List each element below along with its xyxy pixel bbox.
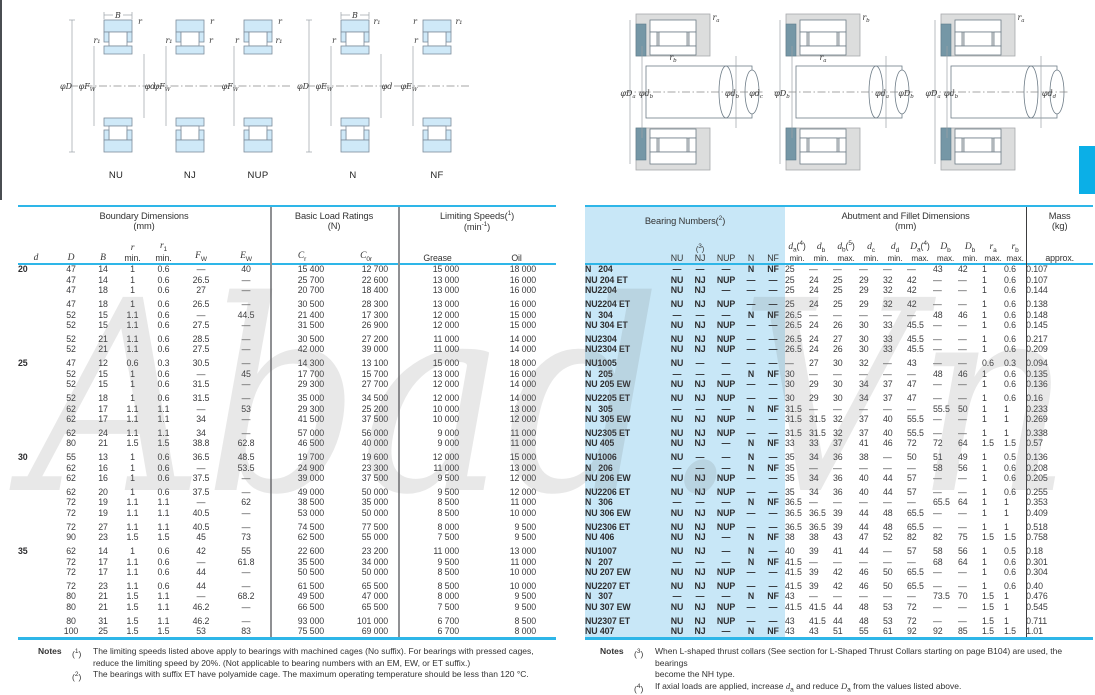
col-rb: rbmax.: [1004, 235, 1026, 264]
bore-diameter: 25: [18, 359, 54, 369]
table-row: 72191.11.140.5—53 00050 0008 50010 000: [18, 508, 556, 518]
cell: 44: [859, 508, 883, 518]
type-availability: NUP: [711, 508, 741, 518]
cell: 0.6: [1004, 557, 1026, 567]
bearing-designation: NU 307 EW: [585, 602, 665, 612]
table-row: 90231.51.5457362 50055 0007 5009 500: [18, 533, 556, 543]
cell: 41: [859, 439, 883, 449]
cell: 62: [54, 414, 88, 424]
cell: 50: [883, 581, 907, 591]
table-row: NU2204 ETNUNJNUP——252425293242——10.60.13…: [585, 300, 1093, 310]
cell: 37.5: [180, 488, 222, 498]
table-row: 62171.11.1—5329 30025 20010 00013 000: [18, 404, 556, 414]
mass-value: 0.107: [1026, 264, 1093, 275]
cell: 0.6: [1004, 474, 1026, 484]
type-availability: NF: [761, 627, 785, 637]
cell: 30: [785, 394, 809, 404]
cell: 62: [54, 404, 88, 414]
cell: —: [833, 310, 859, 320]
cell: 72: [907, 439, 933, 449]
table-row: NU 205 EWNUNJNUP——302930343747——10.60.13…: [585, 380, 1093, 390]
table-row: NU 304 ETNUNJNUP——26.52426303345.5——10.6…: [585, 321, 1093, 331]
cell: 39: [809, 547, 833, 557]
cell: 25: [785, 286, 809, 296]
bore-diameter: [18, 300, 54, 310]
bearing-designation: NU 205 EW: [585, 380, 665, 390]
cell: 32: [859, 359, 883, 369]
cell: 19: [88, 498, 118, 508]
cell: 53: [883, 602, 907, 612]
notes-items: (3)When L-shaped thrust collars (See sec…: [634, 646, 1092, 695]
type-availability: —: [761, 474, 785, 484]
cell: 36.5: [809, 522, 833, 532]
col-Db-max: Dbmax.: [933, 235, 958, 264]
cell: 55: [222, 547, 270, 557]
table-row: 52151.10.627.5—31 50026 90012 00015 000: [18, 321, 556, 331]
bore-diameter: [18, 522, 54, 532]
cell: 0.6: [1004, 300, 1026, 310]
cell: 1.5: [118, 592, 147, 602]
cell: 30: [833, 380, 859, 390]
bearing-designation: NU 304 ET: [585, 321, 665, 331]
type-availability: NU: [665, 522, 689, 532]
cell: —: [809, 498, 833, 508]
cell: 1.5: [1004, 439, 1026, 449]
cell: 65.5: [933, 498, 958, 508]
type-availability: NU: [665, 439, 689, 449]
mass-value: 0.353: [1026, 498, 1093, 508]
type-availability: NF: [761, 439, 785, 449]
cell: 42: [907, 300, 933, 310]
mass-value: 0.16: [1026, 394, 1093, 404]
group-header-abutment: Abutment and Fillet Dimensions(mm): [785, 207, 1026, 235]
table-row: 471810.627—20 70018 40013 00016 000: [18, 286, 556, 296]
cell: 48: [933, 369, 958, 379]
cell: 18 400: [334, 286, 398, 296]
table-row: 621610.637.5—39 00037 5009 50012 000: [18, 474, 556, 484]
cell: 0.6: [147, 557, 180, 567]
cell: 38.8: [180, 439, 222, 449]
cell: 31.5: [785, 404, 809, 414]
type-availability: —: [741, 616, 761, 626]
type-availability: N: [741, 592, 761, 602]
type-availability: —: [761, 359, 785, 369]
mass-value: 0.758: [1026, 533, 1093, 543]
type-availability: —: [741, 474, 761, 484]
cell: 15 000: [398, 359, 477, 369]
mass-value: 0.57: [1026, 439, 1093, 449]
cell: 22 600: [334, 275, 398, 285]
type-availability: NJ: [689, 568, 711, 578]
type-availability: NU: [665, 568, 689, 578]
cell: 32: [833, 428, 859, 438]
cell: 68.2: [222, 592, 270, 602]
type-availability: NJ: [689, 602, 711, 612]
cell: 1.5: [1004, 533, 1026, 543]
cell: 41.5: [809, 602, 833, 612]
cell: 61.8: [222, 557, 270, 567]
cell: —: [958, 522, 982, 532]
cell: —: [859, 404, 883, 414]
cell: 40: [859, 474, 883, 484]
cell: 1: [982, 414, 1004, 424]
type-availability: NU: [665, 547, 689, 557]
cell: —: [222, 345, 270, 355]
cell: 0.6: [147, 581, 180, 591]
bearing-designation: NU2306 ET: [585, 522, 665, 532]
cell: 40 000: [334, 439, 398, 449]
cell: 46: [958, 369, 982, 379]
cell: 28 300: [334, 300, 398, 310]
bearing-designation: N 207: [585, 557, 665, 567]
cell: 25: [833, 286, 859, 296]
cell: —: [833, 404, 859, 414]
bearing-designation: NU 407: [585, 627, 665, 637]
cell: 35 000: [334, 498, 398, 508]
cell: 1: [1004, 592, 1026, 602]
cell: 85: [958, 627, 982, 637]
cell: 39: [833, 508, 859, 518]
cell: 45.5: [907, 335, 933, 345]
cell: 1.1: [118, 414, 147, 424]
table-row: NU2305 ETNUNJNUP——31.531.532374055.5——11…: [585, 428, 1093, 438]
type-availability: —: [761, 581, 785, 591]
cell: 12 000: [398, 321, 477, 331]
type-availability: N: [741, 498, 761, 508]
type-availability: NF: [761, 264, 785, 275]
group-header-boundary: Boundary Dimensions(mm): [18, 207, 270, 235]
type-availability: —: [761, 453, 785, 463]
svg-text:B: B: [114, 11, 121, 20]
cell: 41: [833, 547, 859, 557]
cell: 1: [982, 547, 1004, 557]
bearing-designation: N 305: [585, 404, 665, 414]
bore-diameter: [18, 345, 54, 355]
cell: 7 500: [398, 602, 477, 612]
cell: —: [907, 557, 933, 567]
cell: 1: [982, 498, 1004, 508]
cell: 0.6: [147, 474, 180, 484]
svg-text:rb: rb: [862, 13, 870, 24]
cell: 82: [907, 533, 933, 543]
type-availability: NJ: [689, 394, 711, 404]
col-type-nj: (3)NJ: [689, 235, 711, 264]
cell: 19: [88, 508, 118, 518]
bore-diameter: [18, 592, 54, 602]
type-availability: —: [741, 300, 761, 310]
cell: 36.5: [785, 508, 809, 518]
svg-text:r: r: [235, 36, 240, 45]
cell: 25: [833, 300, 859, 310]
table-row: 72191.11.1—6238 50035 0008 50011 000: [18, 498, 556, 508]
cell: 1.1: [118, 335, 147, 345]
cell: —: [859, 310, 883, 320]
type-availability: NUP: [711, 321, 741, 331]
cell: 33: [883, 345, 907, 355]
bore-diameter: [18, 463, 54, 473]
cell: —: [809, 463, 833, 473]
mass-value: 0.094: [1026, 359, 1093, 369]
cell: 53.5: [222, 463, 270, 473]
cell: 58: [933, 463, 958, 473]
cell: 61 500: [270, 581, 334, 591]
cell: 40: [883, 428, 907, 438]
svg-text:r₁: r₁: [93, 36, 100, 45]
type-availability: NJ: [689, 380, 711, 390]
type-availability: NU: [665, 602, 689, 612]
type-availability: —: [665, 557, 689, 567]
cell: 15: [88, 310, 118, 320]
col-designation: [585, 235, 665, 264]
table-row: NU 406NUNJ—NNF38384347528282751.51.50.75…: [585, 533, 1093, 543]
type-availability: NF: [761, 498, 785, 508]
cell: 39: [809, 581, 833, 591]
cell: 47: [54, 359, 88, 369]
note-marker: (4): [634, 681, 651, 695]
cell: 19 600: [334, 453, 398, 463]
cell: 47: [54, 264, 88, 275]
cell: 34: [809, 453, 833, 463]
cell: —: [859, 557, 883, 567]
cell: 15: [88, 380, 118, 390]
cell: 47: [859, 533, 883, 543]
type-availability: N: [741, 439, 761, 449]
table-row: 72171.10.644—50 50050 0008 50010 000: [18, 568, 556, 578]
type-availability: NU: [665, 275, 689, 285]
bearing-cross-section: rr₁rφEW: [392, 10, 482, 162]
type-availability: —: [741, 568, 761, 578]
cell: 36: [833, 453, 859, 463]
cell: 0.6: [1004, 380, 1026, 390]
col-db-max: db(5)max.: [833, 235, 859, 264]
cell: 30: [859, 335, 883, 345]
mass-value: 0.40: [1026, 581, 1093, 591]
cell: 1: [982, 568, 1004, 578]
cell: 30: [785, 380, 809, 390]
note-text: The limiting speeds listed above apply t…: [93, 646, 534, 669]
type-availability: —: [711, 286, 741, 296]
cell: 30: [833, 359, 859, 369]
table-row: 80311.51.146.2—93 000101 0006 7008 500: [18, 616, 556, 626]
cell: —: [907, 369, 933, 379]
type-availability: NU: [665, 453, 689, 463]
cell: —: [958, 380, 982, 390]
cell: 14 000: [477, 345, 556, 355]
cell: 45.5: [907, 321, 933, 331]
cell: 1: [982, 428, 1004, 438]
type-availability: NUP: [711, 275, 741, 285]
cell: 8 000: [398, 592, 477, 602]
cell: 32: [883, 286, 907, 296]
mounting-cross-section: rbraφDbφdaφDb: [768, 8, 918, 176]
table-row: NU1007NUNJ—N—40394144—57585610.50.18: [585, 547, 1093, 557]
cell: 48.5: [222, 453, 270, 463]
cell: 0.6: [147, 453, 180, 463]
cell: —: [958, 359, 982, 369]
cell: 40.5: [180, 522, 222, 532]
cell: 34 000: [334, 557, 398, 567]
cell: 65 500: [334, 581, 398, 591]
cell: 11 000: [398, 463, 477, 473]
cell: 72: [54, 581, 88, 591]
cell: 35: [785, 474, 809, 484]
type-availability: —: [711, 547, 741, 557]
cell: 17: [88, 414, 118, 424]
cell: 24: [809, 286, 833, 296]
cell: 16 000: [477, 300, 556, 310]
cell: 15 400: [270, 264, 334, 275]
cell: 8 000: [398, 522, 477, 532]
table-row: 30551310.636.548.519 70019 60012 00015 0…: [18, 453, 556, 463]
cell: 1.1: [147, 498, 180, 508]
cell: 24: [809, 275, 833, 285]
cell: 1.1: [118, 310, 147, 320]
cell: 93 000: [270, 616, 334, 626]
cell: 25: [833, 275, 859, 285]
cell: 51: [933, 453, 958, 463]
table-row: N 307———NNF43—————73.5701.510.476: [585, 592, 1093, 602]
cell: 41.5: [785, 581, 809, 591]
cell: 13 000: [398, 369, 477, 379]
cell: 15: [88, 321, 118, 331]
type-availability: NF: [761, 533, 785, 543]
cell: 92: [907, 627, 933, 637]
cell: —: [785, 359, 809, 369]
cell: 32: [883, 300, 907, 310]
cell: —: [809, 264, 833, 275]
cell: 50: [958, 404, 982, 414]
bore-diameter: [18, 404, 54, 414]
bore-diameter: [18, 286, 54, 296]
table-row: 622010.637.5—49 00050 0009 50012 000: [18, 488, 556, 498]
col-dd: ddmin.: [883, 235, 907, 264]
type-availability: —: [665, 369, 689, 379]
mass-value: 0.145: [1026, 321, 1093, 331]
mass-value: 0.255: [1026, 488, 1093, 498]
bearing-designation: N 206: [585, 463, 665, 473]
cell: 1.5: [982, 616, 1004, 626]
cell: 33: [809, 439, 833, 449]
type-availability: —: [665, 463, 689, 473]
type-availability: NUP: [711, 522, 741, 532]
cell: 34: [859, 394, 883, 404]
cell: 12 000: [477, 414, 556, 424]
cell: —: [958, 616, 982, 626]
cell: 74 500: [270, 522, 334, 532]
cell: 43: [785, 627, 809, 637]
cell: 0.6: [147, 321, 180, 331]
cell: 1: [982, 275, 1004, 285]
note3-marker: (3): [689, 243, 711, 254]
cell: 1.5: [982, 592, 1004, 602]
cell: 43: [907, 359, 933, 369]
type-availability: NUP: [711, 394, 741, 404]
svg-text:B: B: [351, 11, 358, 20]
type-availability: NU: [665, 414, 689, 424]
cell: 30.5: [180, 359, 222, 369]
cell: 64: [958, 439, 982, 449]
cell: 52: [54, 335, 88, 345]
bore-diameter: [18, 428, 54, 438]
cell: 31.5: [785, 414, 809, 424]
table-row: 35621410.6425522 60023 20011 00013 000: [18, 547, 556, 557]
table-row: N 206———NNF35—————585610.60.208: [585, 463, 1093, 473]
type-availability: —: [711, 439, 741, 449]
cell: 26.5: [180, 275, 222, 285]
type-availability: —: [741, 488, 761, 498]
cell: 29: [859, 275, 883, 285]
bore-diameter: [18, 508, 54, 518]
type-availability: —: [761, 522, 785, 532]
cell: —: [222, 300, 270, 310]
cell: 65.5: [907, 508, 933, 518]
bore-diameter: [18, 602, 54, 612]
type-availability: NJ: [689, 321, 711, 331]
cell: 43: [785, 592, 809, 602]
cell: 70: [958, 592, 982, 602]
cell: 8 500: [398, 568, 477, 578]
bore-diameter: [18, 335, 54, 345]
bearing-designation: NU 206 EW: [585, 474, 665, 484]
type-availability: —: [711, 310, 741, 320]
cell: 72: [54, 522, 88, 532]
cell: 16 000: [477, 275, 556, 285]
cell: 53: [222, 404, 270, 414]
cell: 46.2: [180, 602, 222, 612]
cell: —: [222, 522, 270, 532]
cell: —: [222, 394, 270, 404]
type-availability: —: [761, 547, 785, 557]
cell: 49 000: [270, 488, 334, 498]
type-availability: —: [761, 286, 785, 296]
bearing-designation: NU1007: [585, 547, 665, 557]
cell: 21: [88, 439, 118, 449]
cell: —: [958, 300, 982, 310]
cell: 44.5: [222, 310, 270, 320]
table-row: NU 204 ETNUNJNUP——252425293242——10.60.10…: [585, 275, 1093, 285]
cell: 50 500: [270, 568, 334, 578]
cell: 1: [982, 321, 1004, 331]
cell: 0.6: [147, 568, 180, 578]
cell: —: [859, 463, 883, 473]
type-availability: NJ: [689, 275, 711, 285]
type-availability: N: [741, 547, 761, 557]
cell: —: [958, 321, 982, 331]
cell: 11 000: [477, 498, 556, 508]
cell: 24: [809, 321, 833, 331]
type-availability: NF: [761, 592, 785, 602]
cell: 21: [88, 592, 118, 602]
cell: 1.1: [147, 602, 180, 612]
mass-value: 0.518: [1026, 522, 1093, 532]
cell: 42: [907, 275, 933, 285]
type-availability: —: [689, 404, 711, 414]
cell: 11 000: [398, 335, 477, 345]
cell: 1.5: [118, 616, 147, 626]
type-availability: NJ: [689, 547, 711, 557]
mass-value: 0.338: [1026, 428, 1093, 438]
bearing-designation: NU2204 ET: [585, 300, 665, 310]
cell: 27.5: [180, 321, 222, 331]
col-oil: Oil: [477, 235, 556, 264]
type-availability: NF: [761, 310, 785, 320]
table-row: NU2204NUNJ———252425293242——10.60.144: [585, 286, 1093, 296]
cell: 1: [982, 369, 1004, 379]
cell: 50 000: [334, 488, 398, 498]
cell: 25: [785, 300, 809, 310]
group-header-limiting-speeds: Limiting Speeds(1)(min-1): [398, 207, 556, 235]
cell: 1: [1004, 404, 1026, 414]
